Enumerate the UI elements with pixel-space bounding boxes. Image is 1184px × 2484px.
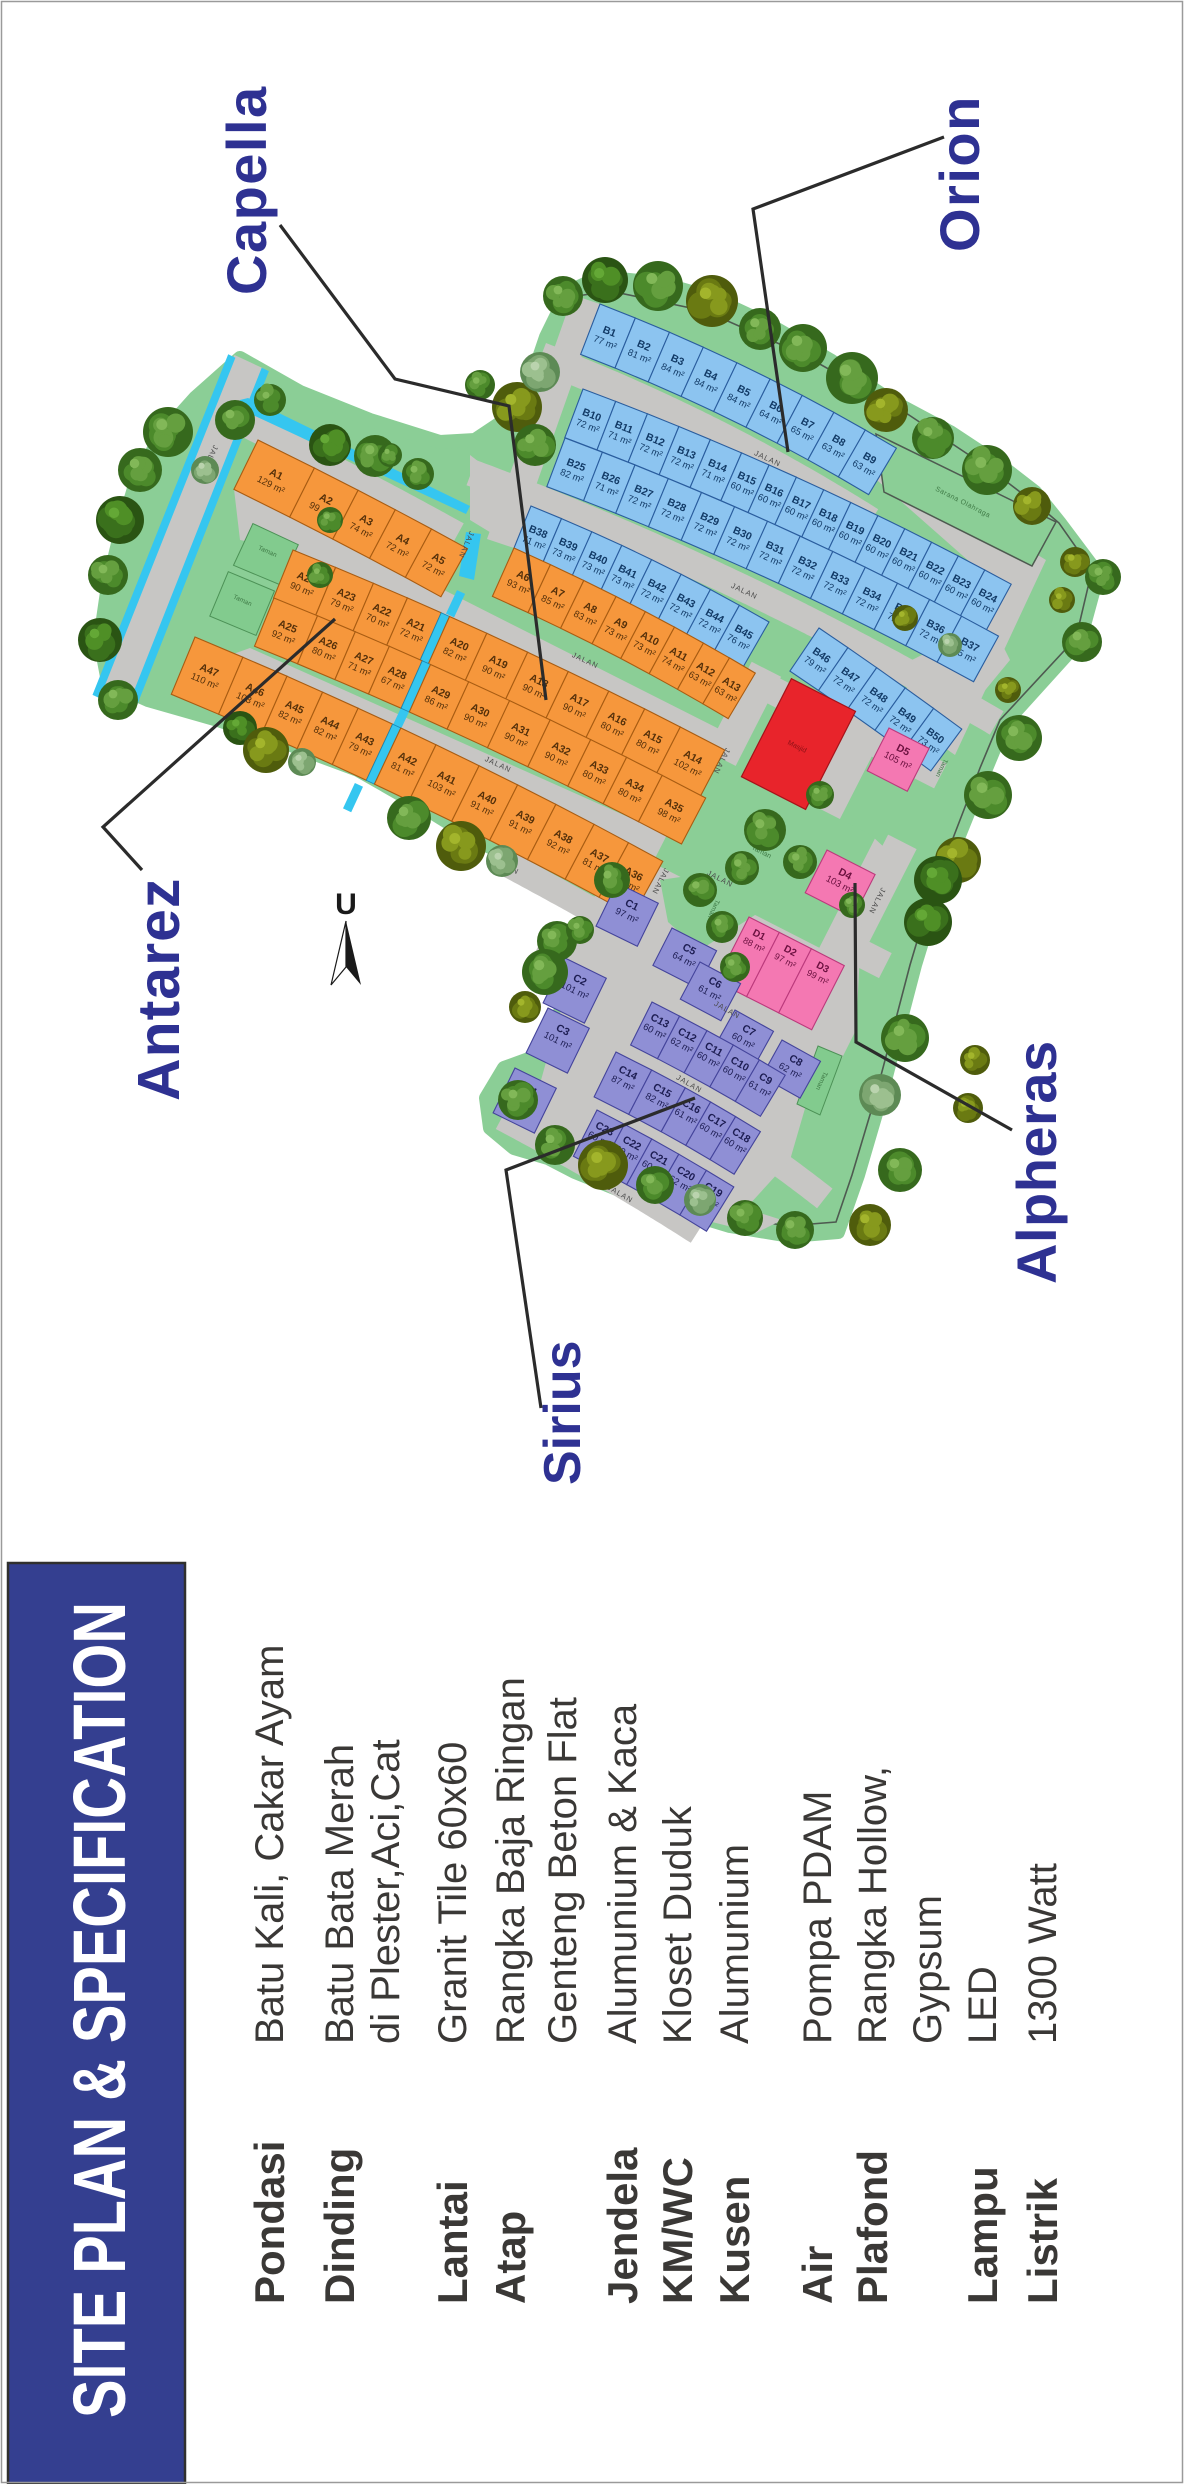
svg-text:Batu Kali, Cakar Ayam: Batu Kali, Cakar Ayam [248, 1645, 292, 2044]
svg-text:Alpheras: Alpheras [1005, 1040, 1068, 1284]
svg-text:KM/WC: KM/WC [654, 2157, 701, 2304]
svg-text:Jendela: Jendela [599, 2147, 646, 2304]
svg-text:Atap: Atap [487, 2211, 534, 2304]
svg-text:Gypsum: Gypsum [906, 1895, 950, 2044]
svg-text:Rangka Baja Ringan: Rangka Baja Ringan [489, 1677, 533, 2044]
svg-text:di Plester,Aci,Cat: di Plester,Aci,Cat [364, 1739, 408, 2044]
svg-text:Capella: Capella [215, 85, 278, 295]
svg-text:Pondasi: Pondasi [246, 2141, 293, 2304]
svg-text:Listrik: Listrik [1019, 2177, 1066, 2304]
svg-text:Air: Air [794, 2246, 841, 2304]
svg-text:Genteng Beton Flat: Genteng Beton Flat [541, 1697, 585, 2044]
svg-text:Granit Tile 60x60: Granit Tile 60x60 [431, 1742, 475, 2044]
svg-text:Orion: Orion [928, 95, 991, 252]
svg-text:Kloset Duduk: Kloset Duduk [656, 1805, 700, 2044]
svg-text:Batu Bata Merah: Batu Bata Merah [318, 1744, 362, 2044]
svg-text:Lampu: Lampu [959, 2166, 1006, 2304]
svg-text:Plafond: Plafond [849, 2150, 896, 2304]
svg-text:Rangka Hollow,: Rangka Hollow, [851, 1766, 895, 2044]
svg-text:U: U [335, 888, 357, 921]
svg-text:Alumunium & Kaca: Alumunium & Kaca [601, 1703, 645, 2044]
svg-text:Antarez: Antarez [126, 878, 192, 1101]
svg-text:Pompa PDAM: Pompa PDAM [796, 1791, 840, 2044]
svg-text:LED: LED [961, 1966, 1005, 2044]
svg-text:1300 Watt: 1300 Watt [1021, 1863, 1065, 2044]
svg-text:Alumunium: Alumunium [713, 1844, 757, 2044]
svg-text:SITE PLAN & SPECIFICATION: SITE PLAN & SPECIFICATION [58, 1602, 141, 2418]
svg-text:Lantai: Lantai [429, 2180, 476, 2304]
svg-text:Sirius: Sirius [534, 1341, 592, 1486]
svg-text:Kusen: Kusen [711, 2176, 758, 2304]
svg-text:Dinding: Dinding [316, 2148, 363, 2304]
